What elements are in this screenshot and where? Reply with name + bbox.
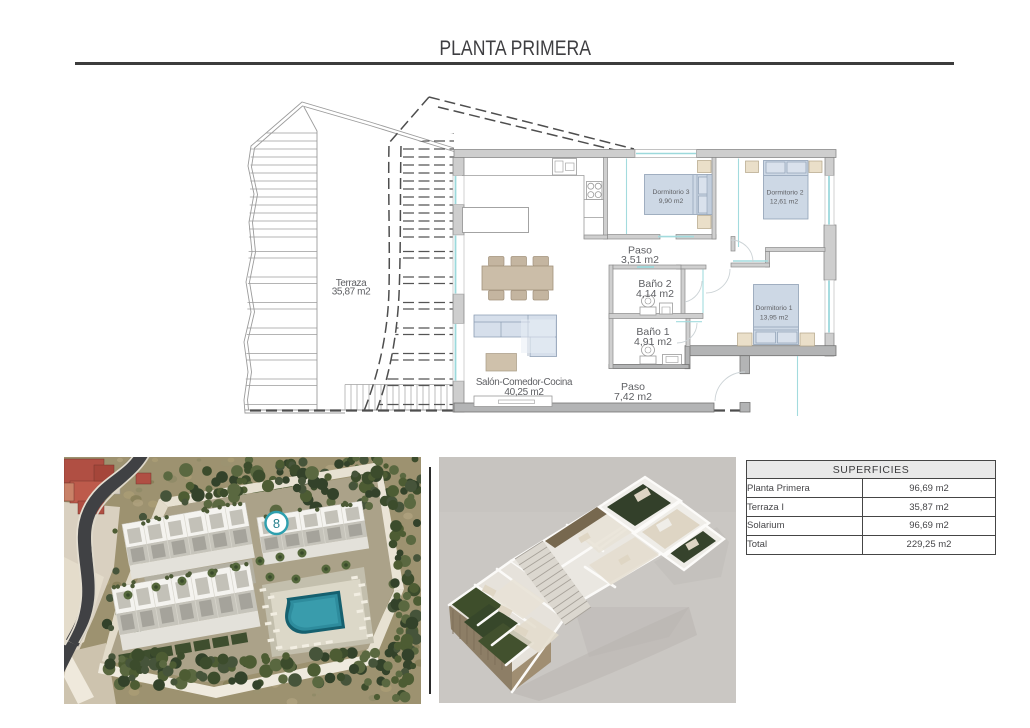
- svg-text:4,91 m2: 4,91 m2: [634, 336, 672, 348]
- svg-text:12,61 m2: 12,61 m2: [770, 199, 799, 206]
- svg-text:4,14 m2: 4,14 m2: [636, 288, 674, 300]
- svg-text:35,87 m2: 35,87 m2: [332, 287, 371, 298]
- svg-text:Dormitorio 3: Dormitorio 3: [652, 189, 689, 196]
- svg-text:Dormitorio 2: Dormitorio 2: [766, 190, 803, 197]
- svg-text:9,90 m2: 9,90 m2: [659, 198, 684, 205]
- svg-text:7,42 m2: 7,42 m2: [614, 391, 652, 403]
- svg-text:Dormitorio 1: Dormitorio 1: [755, 305, 792, 312]
- svg-text:40,25 m2: 40,25 m2: [504, 387, 544, 398]
- svg-text:13,95 m2: 13,95 m2: [760, 315, 789, 322]
- svg-text:3,51 m2: 3,51 m2: [621, 254, 659, 266]
- svg-text:8: 8: [273, 516, 280, 531]
